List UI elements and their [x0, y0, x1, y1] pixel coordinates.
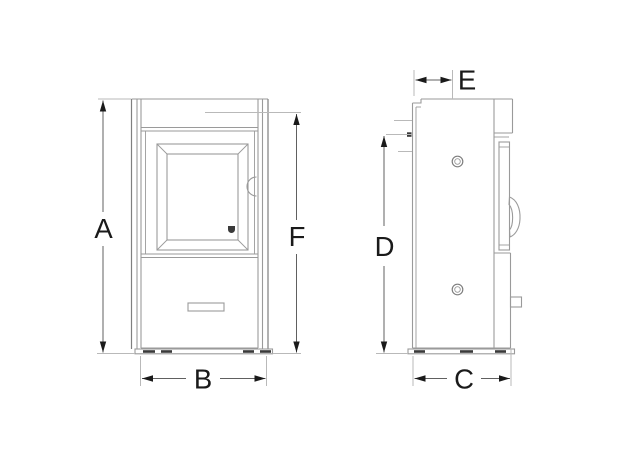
side-foot	[495, 350, 506, 353]
window-outer-frame	[157, 144, 248, 250]
dimension-D: D	[375, 135, 412, 354]
side-latch	[511, 297, 522, 307]
dimension-label-E: E	[458, 65, 476, 96]
front-drawer-handle	[188, 303, 224, 311]
front-base-plate	[135, 349, 273, 354]
side-view	[394, 99, 522, 354]
side-front-profile	[494, 99, 522, 348]
side-foot	[460, 350, 473, 353]
window-glass	[167, 154, 238, 240]
dimension-label-C: C	[454, 364, 474, 395]
front-left-side-panel	[132, 99, 138, 349]
front-foot	[243, 350, 254, 353]
drawing-canvas: A F B D C E	[0, 0, 624, 460]
front-view	[132, 99, 273, 354]
stove-dimension-drawing: A F B D C E	[0, 0, 624, 460]
dimension-label-D: D	[375, 231, 395, 262]
front-door-window	[157, 144, 248, 250]
dimension-C: C	[413, 349, 511, 395]
screw-head-icon	[452, 156, 463, 167]
dimension-label-A: A	[94, 213, 113, 244]
front-foot	[143, 350, 155, 353]
dimension-E: E	[414, 65, 476, 100]
screw-head-icon	[452, 284, 463, 295]
front-right-side-panel	[263, 99, 269, 349]
side-door-edge	[499, 142, 510, 250]
dimension-label-F: F	[289, 221, 306, 252]
dimension-B: B	[141, 356, 267, 395]
side-door-handle	[509, 197, 520, 237]
side-rear-flue-marks	[394, 121, 412, 152]
front-upper-panel-separator	[141, 128, 258, 132]
brand-mark-icon	[228, 226, 235, 233]
dimension-label-B: B	[194, 364, 212, 395]
front-foot	[161, 350, 172, 353]
dimension-F: F	[205, 113, 305, 354]
front-door-bottom-split	[141, 254, 258, 258]
side-base-plate	[408, 348, 515, 354]
side-foot	[414, 350, 425, 353]
side-top-and-rear	[413, 99, 495, 348]
dimension-A: A	[94, 99, 135, 354]
front-foot	[260, 350, 271, 353]
